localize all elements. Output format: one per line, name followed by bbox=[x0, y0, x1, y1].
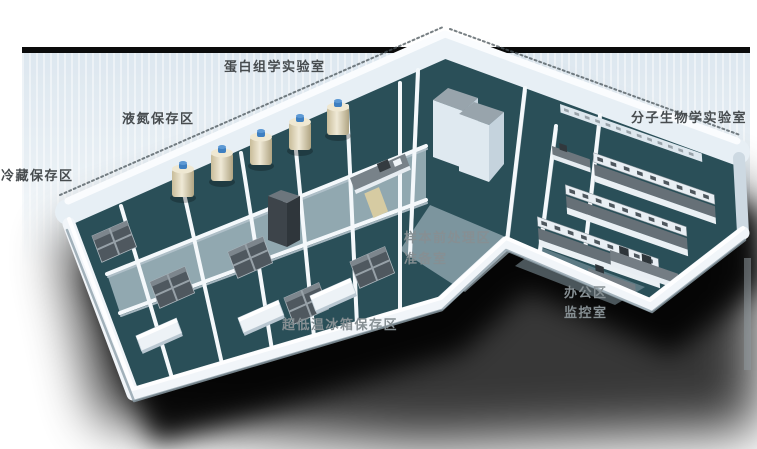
lab-floorplan-scene: 蛋白组学实验室 液氮保存区 冷藏保存区 分子生物学实验室 样本前处理区 准备室 … bbox=[0, 0, 757, 449]
equipment-rack-icon bbox=[268, 190, 300, 247]
area-label-ult-freezer-storage: 超低温冰箱保存区 bbox=[282, 318, 398, 331]
liquid-nitrogen-tank-icon bbox=[170, 161, 196, 203]
lab-floorplan-illustration bbox=[0, 0, 757, 449]
liquid-nitrogen-tank-icon bbox=[248, 129, 274, 171]
liquid-nitrogen-tank-icon bbox=[325, 99, 351, 141]
tall-cabinet-icon bbox=[459, 102, 504, 182]
area-label-monitoring-room: 监控室 bbox=[564, 306, 608, 319]
area-label-cold-storage: 冷藏保存区 bbox=[1, 169, 74, 182]
area-label-sample-pretreatment: 样本前处理区 bbox=[404, 231, 491, 244]
area-label-prep-room: 准备室 bbox=[404, 252, 448, 265]
liquid-nitrogen-tank-icon bbox=[209, 145, 235, 187]
area-label-liquid-nitrogen-storage: 液氮保存区 bbox=[122, 112, 195, 125]
right-edge-strip bbox=[744, 258, 751, 370]
area-label-molecular-biology-lab: 分子生物学实验室 bbox=[631, 111, 747, 124]
area-label-proteomics-lab: 蛋白组学实验室 bbox=[224, 60, 326, 73]
area-label-office-area: 办公区 bbox=[564, 286, 608, 299]
liquid-nitrogen-tank-icon bbox=[287, 114, 313, 156]
